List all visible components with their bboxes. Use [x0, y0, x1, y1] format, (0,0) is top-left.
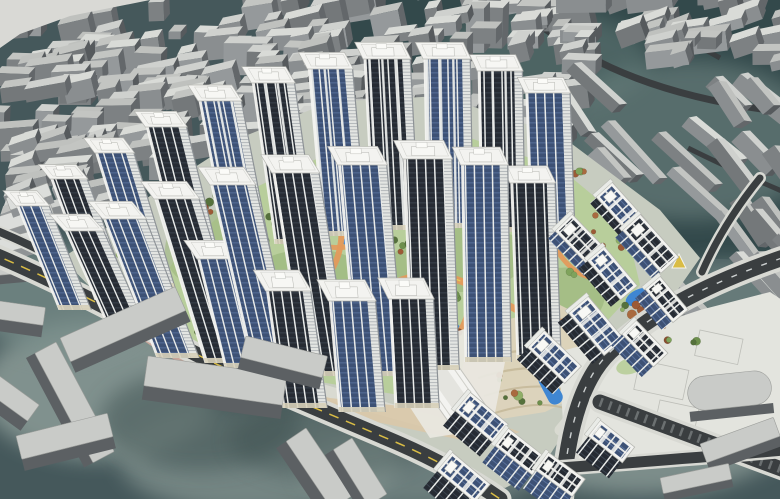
masterplan-rendering	[0, 0, 780, 499]
render-root	[0, 0, 780, 499]
masterplan-scene	[0, 0, 780, 499]
